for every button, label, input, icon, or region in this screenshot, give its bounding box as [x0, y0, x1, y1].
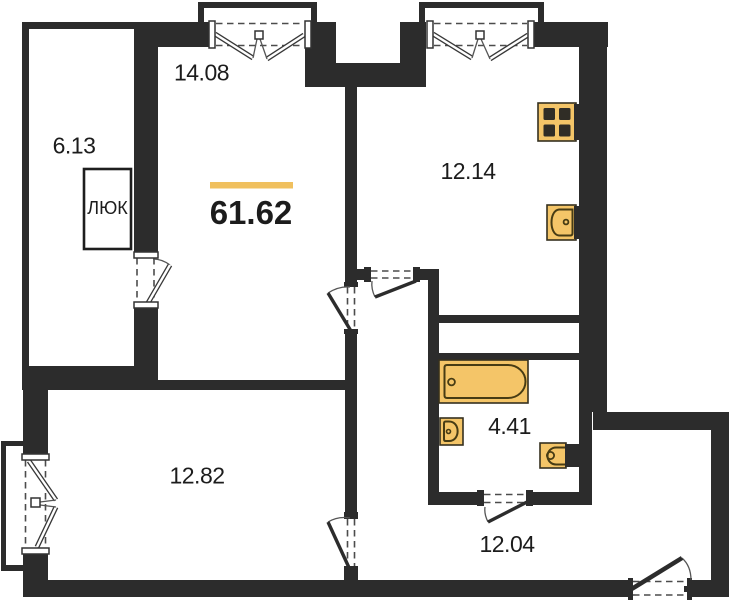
svg-text:14.08: 14.08	[174, 60, 229, 86]
svg-text:12.14: 12.14	[440, 158, 496, 184]
svg-text:4.41: 4.41	[488, 413, 531, 439]
svg-text:12.82: 12.82	[169, 463, 224, 489]
svg-text:12.04: 12.04	[479, 531, 535, 557]
svg-text:ЛЮК: ЛЮК	[87, 198, 128, 218]
svg-text:6.13: 6.13	[53, 133, 96, 159]
svg-text:61.62: 61.62	[210, 194, 293, 231]
